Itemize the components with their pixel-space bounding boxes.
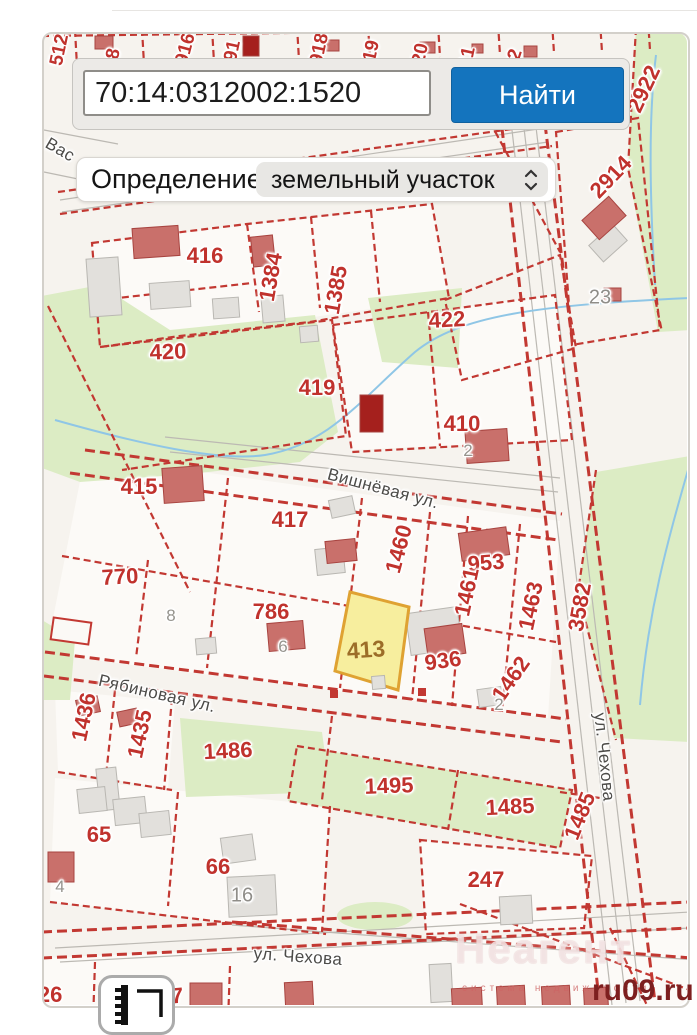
top-divider-line: [112, 10, 697, 11]
chevron-up-down-icon: [524, 168, 538, 197]
outlined-building: [51, 617, 92, 644]
find-button[interactable]: Найти: [451, 67, 624, 123]
gray-building: [371, 675, 385, 689]
watermark-site: ru09.ru: [592, 974, 694, 1008]
measure-tool-button[interactable]: [98, 975, 175, 1035]
cadastral-number-input[interactable]: [83, 70, 431, 116]
search-panel: Найти: [72, 58, 630, 130]
definition-label: Определение:: [91, 164, 269, 195]
definition-select[interactable]: земельный участок: [256, 162, 548, 197]
highlighted-parcel-413[interactable]: [335, 592, 409, 690]
ruler-icon: [107, 1015, 169, 1030]
definition-bar: Определение: земельный участок: [76, 157, 556, 202]
definition-selected-option: земельный участок: [271, 166, 495, 195]
watermark-brand: Неагент: [455, 925, 633, 973]
cadastral-map-canvas[interactable]: [0, 0, 697, 1024]
